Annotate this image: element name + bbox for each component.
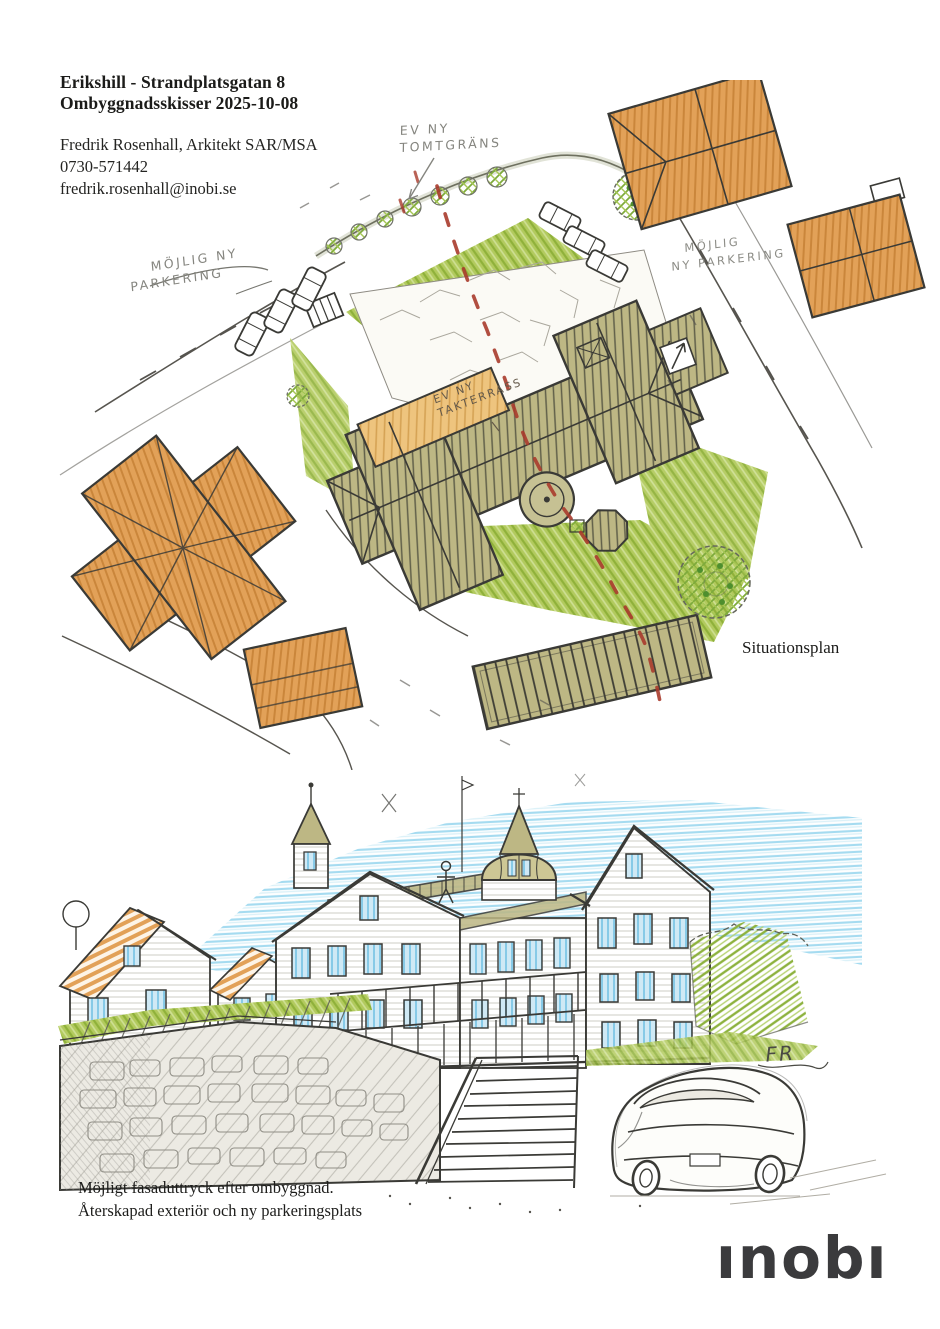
svg-text:FR: FR [765, 1041, 796, 1067]
drawing-sheet: Erikshill - Strandplatsgatan 8 Ombyggnad… [0, 0, 940, 1329]
planter [570, 520, 584, 532]
gravel-specks [389, 1195, 641, 1213]
neighbour-house-east [783, 178, 928, 317]
facade-sketch: FR [30, 760, 910, 1220]
car [612, 1065, 807, 1197]
caption-line-2: Återskapad exteriör och ny parkeringspla… [78, 1199, 362, 1222]
site-plan-label: Situationsplan [742, 638, 839, 658]
retaining-wall [60, 1016, 440, 1190]
annotation-tomtgrans: EV NY TOMTGRÄNS [399, 117, 502, 156]
neighbour-house-southwest [244, 628, 362, 728]
caption-line-1: Möjligt fasaduttryck efter ombyggnad. [78, 1176, 362, 1199]
windows-right [598, 914, 692, 1048]
tree [287, 385, 309, 407]
tree [678, 546, 750, 618]
license-plate [690, 1154, 720, 1166]
turret-spire [292, 804, 330, 844]
inobi-logo: ınobı [716, 1224, 888, 1292]
annotation-underline [236, 281, 272, 294]
tree-ball [63, 901, 89, 927]
architect-signature: FR [758, 1041, 828, 1069]
long-outbuilding [473, 615, 712, 729]
site-plan-sketch [0, 80, 940, 770]
facade-caption: Möjligt fasaduttryck efter ombyggnad. Åt… [78, 1176, 362, 1222]
